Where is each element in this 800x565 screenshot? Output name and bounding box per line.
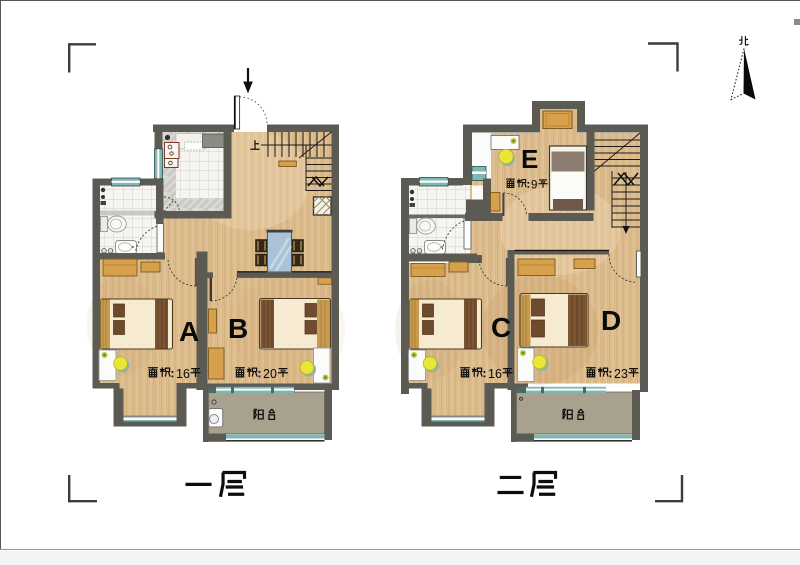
svg-text:9: 9 (531, 180, 537, 192)
svg-text:16: 16 (488, 367, 502, 381)
svg-text:D: D (601, 305, 621, 336)
svg-text:B: B (228, 313, 248, 344)
svg-text:C: C (491, 312, 511, 343)
svg-text:23: 23 (614, 367, 628, 381)
svg-text:20: 20 (263, 367, 277, 381)
svg-text:16: 16 (176, 367, 190, 381)
svg-text:E: E (521, 144, 538, 174)
svg-text:A: A (179, 316, 199, 347)
